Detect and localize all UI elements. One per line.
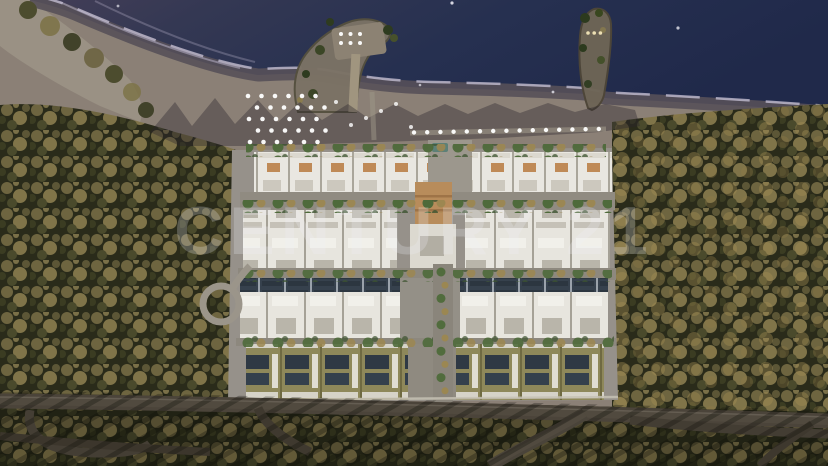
dot (339, 32, 343, 36)
building-row-second-right (465, 210, 610, 268)
dot (256, 128, 261, 133)
dot (437, 294, 446, 303)
dot (437, 373, 446, 382)
dot (302, 140, 307, 145)
dot (358, 32, 362, 36)
dot (491, 129, 495, 133)
dot (268, 105, 273, 110)
dot (248, 140, 253, 145)
dot (309, 105, 314, 110)
tree-row-4 (236, 336, 614, 347)
dot (592, 31, 596, 35)
dot (442, 361, 449, 368)
dot (259, 94, 264, 99)
dot (349, 123, 353, 127)
dot (442, 387, 449, 394)
dot (583, 127, 587, 131)
dot (379, 109, 383, 113)
dot (282, 105, 287, 110)
dot (437, 320, 446, 329)
central-clubhouse (410, 182, 456, 268)
dot (295, 105, 300, 110)
clubhouse-courtyard (420, 236, 444, 256)
dot (437, 268, 446, 277)
building-row-beachfront-right (472, 152, 612, 192)
dot (442, 308, 449, 315)
dot (275, 140, 280, 145)
dot (597, 127, 601, 131)
dot (314, 117, 319, 122)
dot (315, 140, 320, 145)
dot (261, 140, 266, 145)
dot (586, 31, 590, 35)
building-row-fourth-right (456, 344, 604, 400)
dot (322, 105, 327, 110)
building-row-beachfront-left (254, 152, 428, 192)
dot (442, 335, 449, 342)
clubhouse-roof-ridge (415, 195, 452, 198)
dot (570, 127, 574, 131)
dot (246, 94, 251, 99)
dot (300, 94, 305, 99)
dot (478, 129, 482, 133)
dot (274, 117, 279, 122)
dot (313, 94, 318, 99)
dot (451, 130, 455, 134)
dot (273, 94, 278, 99)
dot (269, 128, 274, 133)
dot (531, 128, 535, 132)
dot (255, 105, 260, 110)
dot (504, 129, 508, 133)
dot (425, 130, 429, 134)
dot (437, 347, 446, 356)
dot (438, 130, 442, 134)
beach-boardwalk (372, 92, 374, 140)
dot (358, 41, 362, 45)
tree-row-3 (238, 270, 612, 282)
dot (442, 282, 449, 289)
dot (599, 31, 603, 35)
dot (465, 129, 469, 133)
dot (409, 125, 413, 129)
dot (283, 128, 288, 133)
dot (260, 117, 265, 122)
dot (247, 117, 252, 122)
building-row-second-left (243, 210, 397, 268)
dot (287, 117, 292, 122)
dot (339, 41, 343, 45)
dot (296, 128, 301, 133)
tree-row-2 (240, 200, 612, 213)
dot (557, 128, 561, 132)
dot (517, 128, 521, 132)
dot (412, 130, 416, 134)
jetty-lights (586, 31, 602, 35)
dot (394, 102, 398, 106)
dot (334, 100, 338, 104)
residential-complex (203, 140, 618, 402)
dot (544, 128, 548, 132)
aerial-development-render: CENTURY 21 (0, 0, 828, 466)
dot (349, 32, 353, 36)
dot (310, 128, 315, 133)
dot (323, 128, 328, 133)
dot (349, 41, 353, 45)
dot (364, 116, 368, 120)
tree-row-1 (246, 144, 606, 157)
dot (286, 94, 291, 99)
dot (288, 140, 293, 145)
dot (301, 117, 306, 122)
building-row-fourth-left (246, 344, 408, 400)
